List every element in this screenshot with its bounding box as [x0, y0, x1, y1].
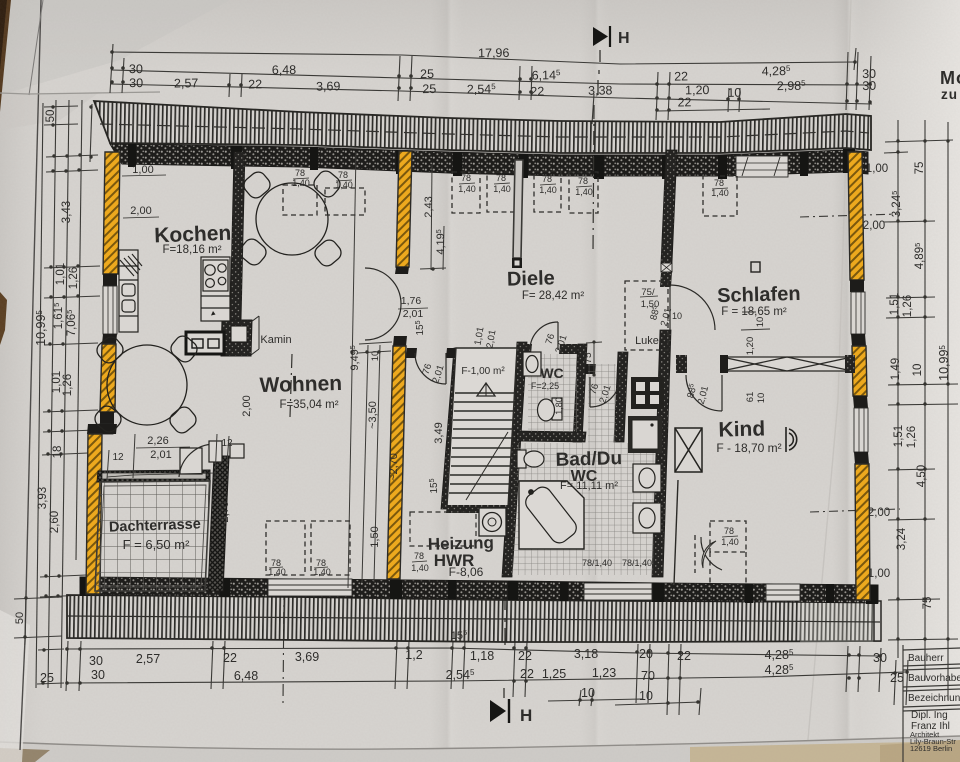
svg-text:20: 20: [639, 647, 653, 661]
svg-text:1,2: 1,2: [405, 648, 422, 662]
svg-text:2,01: 2,01: [403, 308, 424, 320]
svg-text:2,60: 2,60: [49, 511, 61, 533]
svg-text:78: 78: [295, 168, 305, 178]
svg-text:F=2,25: F=2,25: [531, 381, 559, 391]
svg-text:Dipl. Ing: Dipl. Ing: [911, 710, 948, 721]
svg-text:Dachterrasse: Dachterrasse: [109, 516, 201, 535]
svg-text:10: 10: [370, 351, 381, 362]
svg-text:10,995: 10,995: [34, 310, 48, 346]
svg-text:F=35,04 m²: F=35,04 m²: [279, 399, 338, 411]
svg-text:H: H: [618, 30, 630, 47]
svg-text:2,00: 2,00: [130, 205, 151, 217]
svg-text:F=18,16 m²: F=18,16 m²: [162, 244, 221, 256]
svg-text:22: 22: [520, 667, 534, 681]
svg-text:78: 78: [496, 173, 506, 183]
svg-text:Bauherr: Bauherr: [908, 653, 944, 664]
svg-text:22: 22: [677, 649, 691, 663]
svg-text:75: 75: [583, 352, 594, 364]
svg-text:78: 78: [724, 526, 734, 536]
svg-text:Luke: Luke: [635, 335, 659, 347]
svg-text:2,00: 2,00: [241, 395, 253, 416]
svg-text:~3,50: ~3,50: [367, 401, 379, 429]
svg-text:18: 18: [52, 446, 64, 459]
svg-text:Kind: Kind: [718, 417, 765, 441]
svg-text:12: 12: [112, 452, 124, 463]
svg-text:12: 12: [221, 438, 233, 449]
svg-text:1,40: 1,40: [575, 187, 593, 197]
svg-text:F= 11,11 m²: F= 11,11 m²: [560, 480, 618, 492]
svg-text:1,76: 1,76: [401, 295, 422, 307]
svg-text:10: 10: [581, 686, 595, 700]
svg-text:30: 30: [873, 651, 887, 665]
svg-text:1,01: 1,01: [55, 263, 67, 285]
svg-text:25: 25: [890, 671, 904, 685]
svg-text:1,51: 1,51: [889, 293, 901, 315]
svg-text:1,00: 1,00: [868, 568, 890, 580]
svg-text:22: 22: [518, 649, 532, 663]
svg-text:75: 75: [914, 162, 926, 175]
svg-text:Bezeichnung: Bezeichnung: [908, 693, 960, 704]
svg-text:1,26: 1,26: [62, 374, 74, 396]
svg-text:1,51: 1,51: [893, 425, 905, 447]
svg-text:F - 18,70 m²: F - 18,70 m²: [716, 441, 781, 455]
svg-text:6,48: 6,48: [272, 63, 297, 77]
svg-text:Diele: Diele: [507, 267, 555, 290]
svg-text:3,24: 3,24: [896, 527, 908, 550]
svg-text:70: 70: [641, 669, 655, 683]
svg-text:Wohnen: Wohnen: [259, 372, 342, 397]
svg-text:10: 10: [672, 311, 682, 321]
svg-text:22: 22: [674, 69, 688, 83]
svg-text:4,50: 4,50: [916, 465, 928, 487]
svg-text:1,40: 1,40: [313, 567, 331, 577]
svg-text:1,18: 1,18: [470, 649, 494, 663]
svg-text:~2,70: ~2,70: [388, 453, 400, 481]
svg-text:6,48: 6,48: [234, 669, 258, 683]
svg-text:3,43: 3,43: [61, 201, 73, 223]
svg-text:Bauvorhaben: Bauvorhaben: [908, 673, 960, 684]
svg-text:1,26: 1,26: [68, 267, 80, 289]
svg-text:1,40: 1,40: [721, 537, 739, 547]
svg-text:Mo: Mo: [940, 68, 960, 88]
svg-text:61: 61: [745, 392, 756, 403]
svg-text:1,00: 1,00: [866, 163, 888, 175]
svg-text:H: H: [520, 706, 532, 725]
svg-text:78: 78: [542, 174, 552, 184]
svg-text:Kamin: Kamin: [260, 334, 291, 346]
svg-text:50: 50: [14, 612, 26, 624]
svg-text:78: 78: [461, 173, 471, 183]
svg-text:22: 22: [677, 95, 691, 109]
svg-text:1,23: 1,23: [592, 666, 616, 680]
svg-text:30: 30: [129, 76, 143, 90]
svg-text:1,40: 1,40: [411, 563, 429, 573]
svg-text:1,40: 1,40: [539, 185, 557, 195]
svg-text:1,40: 1,40: [493, 184, 511, 194]
svg-text:2,57: 2,57: [174, 76, 199, 90]
svg-text:25: 25: [422, 82, 436, 96]
svg-text:17,96: 17,96: [478, 46, 510, 60]
svg-text:1,20: 1,20: [745, 337, 756, 356]
svg-text:10,995: 10,995: [937, 345, 951, 381]
svg-text:1,49: 1,49: [890, 358, 902, 380]
svg-text:30: 30: [89, 654, 103, 668]
svg-text:78: 78: [338, 170, 348, 180]
svg-text:78: 78: [714, 178, 724, 188]
svg-text:3,18: 3,18: [574, 647, 598, 661]
svg-text:1,40: 1,40: [268, 567, 286, 577]
svg-text:1,26: 1,26: [906, 426, 918, 448]
svg-text:Schlafen: Schlafen: [717, 283, 801, 307]
svg-text:3,69: 3,69: [316, 79, 341, 93]
svg-text:F-8,06: F-8,06: [449, 565, 484, 579]
svg-text:22: 22: [530, 84, 544, 98]
svg-text:78: 78: [414, 551, 424, 561]
svg-text:1,40: 1,40: [335, 180, 353, 190]
svg-text:F = 6,50 m²: F = 6,50 m²: [123, 537, 190, 552]
svg-text:1,25: 1,25: [542, 667, 566, 681]
svg-text:3,93: 3,93: [37, 487, 49, 509]
svg-text:10: 10: [756, 393, 767, 404]
svg-text:10: 10: [755, 317, 766, 328]
svg-text:3,49: 3,49: [433, 422, 445, 443]
svg-text:3,38: 3,38: [588, 83, 613, 97]
svg-text:1,40: 1,40: [292, 178, 310, 188]
svg-text:30: 30: [91, 668, 105, 682]
svg-text:2,00: 2,00: [863, 220, 885, 232]
svg-text:12619 Berlin: 12619 Berlin: [910, 744, 952, 753]
svg-text:1,40: 1,40: [458, 184, 476, 194]
svg-text:78/1,40: 78/1,40: [622, 558, 652, 568]
svg-text:2,00: 2,00: [868, 507, 890, 519]
svg-text:F= 28,42 m²: F= 28,42 m²: [522, 290, 584, 302]
svg-text:22: 22: [248, 77, 262, 91]
svg-text:10: 10: [639, 689, 653, 703]
svg-text:1,40: 1,40: [711, 188, 729, 198]
svg-text:1,50: 1,50: [369, 526, 381, 547]
svg-text:1,26: 1,26: [902, 295, 914, 317]
svg-text:1,80: 1,80: [554, 397, 564, 415]
svg-text:zu: zu: [941, 87, 958, 102]
svg-text:2,26: 2,26: [147, 435, 168, 447]
svg-text:2,01: 2,01: [150, 449, 171, 461]
svg-text:2,43: 2,43: [423, 196, 435, 217]
svg-text:~2,70: ~2,70: [219, 501, 231, 529]
svg-text:3,69: 3,69: [295, 650, 319, 664]
svg-text:50: 50: [45, 110, 57, 123]
svg-text:25: 25: [420, 67, 434, 81]
svg-text:22: 22: [223, 651, 237, 665]
svg-text:30: 30: [129, 62, 143, 76]
svg-text:10: 10: [727, 86, 741, 100]
svg-text:75: 75: [922, 597, 934, 610]
svg-text:F-1,00 m²: F-1,00 m²: [461, 366, 505, 377]
svg-text:1,00: 1,00: [132, 164, 153, 176]
svg-text:WC: WC: [540, 365, 563, 381]
svg-text:2,57: 2,57: [136, 652, 160, 666]
svg-text:78: 78: [578, 176, 588, 186]
svg-text:30: 30: [862, 79, 876, 93]
svg-text:78/1,40: 78/1,40: [582, 558, 612, 568]
svg-text:10: 10: [912, 364, 924, 377]
